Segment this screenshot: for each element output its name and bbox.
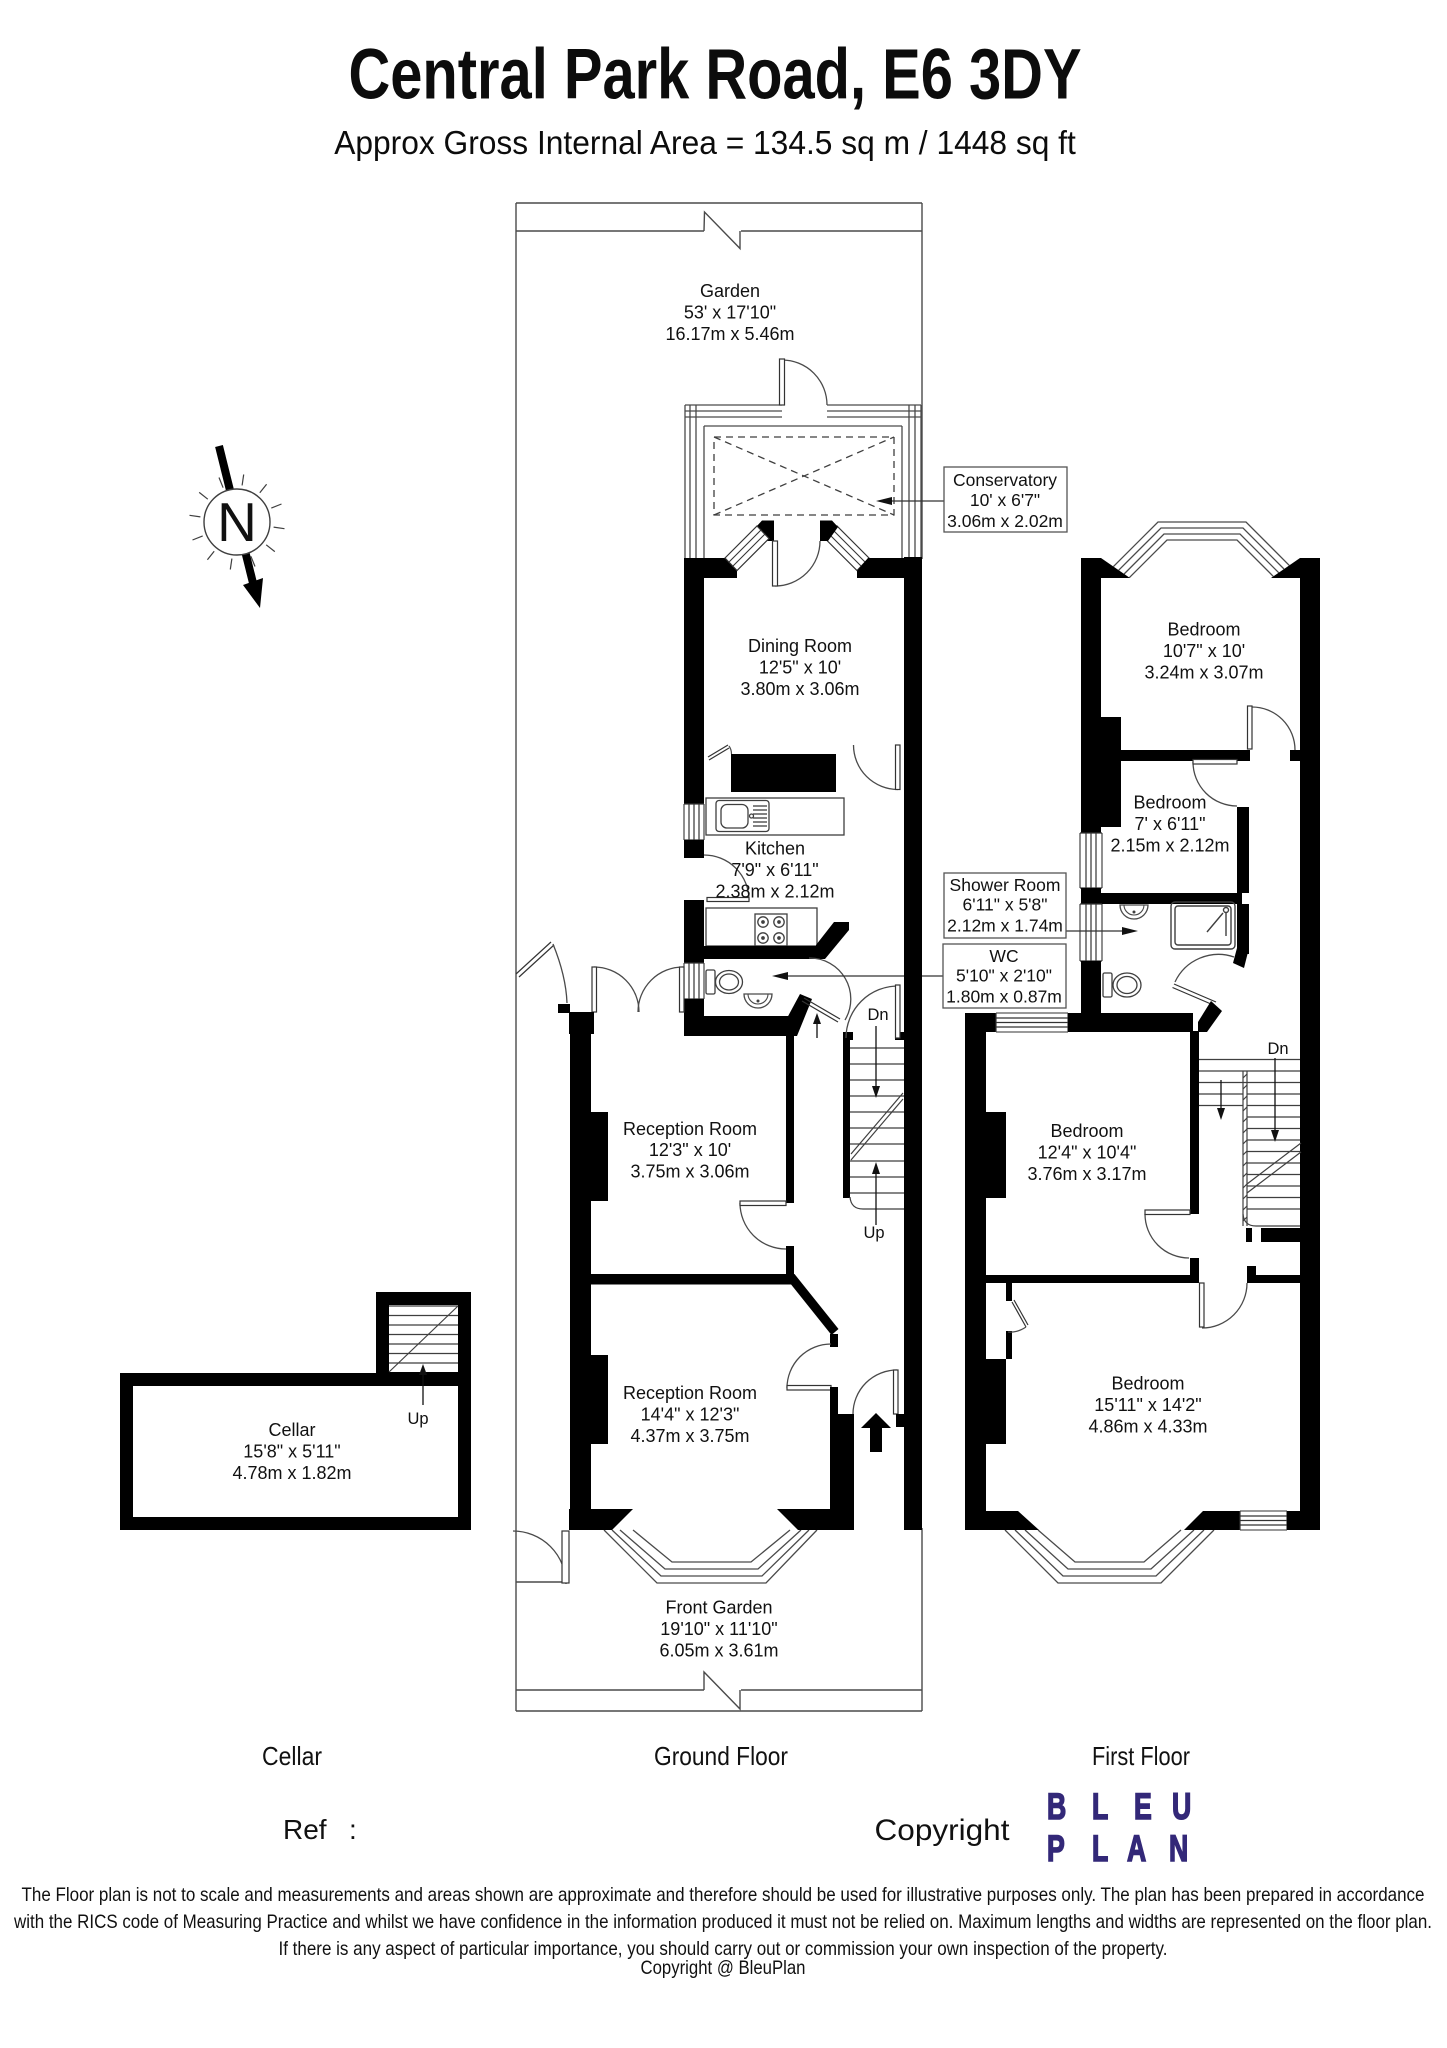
svg-text:The Floor plan is not to scale: The Floor plan is not to scale and measu… — [22, 1884, 1425, 1906]
svg-text:53' x 17'10": 53' x 17'10" — [684, 303, 776, 323]
svg-text:4.86m x 4.33m: 4.86m x 4.33m — [1088, 1417, 1207, 1437]
svg-text:19'10" x 11'10": 19'10" x 11'10" — [660, 1619, 777, 1639]
svg-text:15'8" x 5'11": 15'8" x 5'11" — [243, 1442, 340, 1462]
svg-text:10'7" x 10': 10'7" x 10' — [1163, 641, 1245, 661]
svg-text:3.76m x 3.17m: 3.76m x 3.17m — [1027, 1164, 1146, 1184]
svg-text:U: U — [1172, 1786, 1191, 1827]
svg-text:6'11" x 5'8": 6'11" x 5'8" — [963, 895, 1048, 915]
svg-text:Up: Up — [407, 1410, 428, 1428]
svg-text:WC: WC — [989, 946, 1018, 966]
svg-text:N: N — [1169, 1828, 1188, 1869]
svg-text:5'10" x 2'10": 5'10" x 2'10" — [956, 966, 1052, 986]
svg-text:Bedroom: Bedroom — [1133, 793, 1206, 813]
svg-text:3.24m x 3.07m: 3.24m x 3.07m — [1144, 663, 1263, 683]
svg-text:12'3" x 10': 12'3" x 10' — [649, 1140, 731, 1160]
svg-text:7'9" x 6'11": 7'9" x 6'11" — [731, 860, 818, 880]
svg-text:Up: Up — [863, 1224, 884, 1242]
svg-text:Dn: Dn — [867, 1006, 888, 1024]
svg-text::: : — [349, 1814, 357, 1845]
svg-text:Conservatory: Conservatory — [953, 470, 1057, 490]
svg-text:Bedroom: Bedroom — [1167, 620, 1240, 640]
svg-text:Reception Room: Reception Room — [623, 1119, 757, 1139]
svg-text:Kitchen: Kitchen — [745, 839, 805, 859]
svg-text:2.38m x 2.12m: 2.38m x 2.12m — [715, 882, 834, 902]
svg-text:7' x 6'11": 7' x 6'11" — [1135, 814, 1206, 834]
svg-text:First Floor: First Floor — [1092, 1741, 1190, 1771]
svg-text:3.06m x 2.02m: 3.06m x 2.02m — [947, 511, 1063, 531]
svg-text:Copyright @ BleuPlan: Copyright @ BleuPlan — [641, 1957, 806, 1979]
svg-text:B: B — [1047, 1786, 1066, 1827]
svg-text:6.05m x 3.61m: 6.05m x 3.61m — [659, 1641, 778, 1661]
svg-text:L: L — [1092, 1786, 1108, 1827]
svg-text:Reception Room: Reception Room — [623, 1383, 757, 1403]
svg-text:Cellar: Cellar — [262, 1741, 322, 1771]
svg-text:3.80m x 3.06m: 3.80m x 3.06m — [740, 679, 859, 699]
svg-text:Cellar: Cellar — [268, 1420, 315, 1440]
svg-text:Shower Room: Shower Room — [950, 875, 1061, 895]
svg-text:14'4" x 12'3": 14'4" x 12'3" — [641, 1405, 740, 1425]
svg-text:Bedroom: Bedroom — [1050, 1121, 1123, 1141]
svg-text:16.17m x 5.46m: 16.17m x 5.46m — [665, 324, 794, 344]
svg-text:Approx Gross Internal Area = 1: Approx Gross Internal Area = 134.5 sq m … — [334, 124, 1076, 161]
svg-text:N: N — [217, 491, 257, 553]
svg-text:Dn: Dn — [1267, 1040, 1288, 1058]
svg-text:Central Park Road, E6 3DY: Central Park Road, E6 3DY — [348, 34, 1081, 114]
svg-text:with the RICS code of Measurin: with the RICS code of Measuring Practice… — [13, 1911, 1432, 1933]
svg-text:Ground Floor: Ground Floor — [654, 1741, 788, 1771]
svg-text:A: A — [1127, 1828, 1146, 1869]
svg-text:Garden: Garden — [700, 281, 760, 301]
svg-text:12'5" x 10': 12'5" x 10' — [759, 658, 841, 678]
svg-text:Front Garden: Front Garden — [665, 1598, 772, 1618]
svg-text:2.15m x 2.12m: 2.15m x 2.12m — [1110, 836, 1229, 856]
svg-text:Dining Room: Dining Room — [748, 636, 852, 656]
svg-text:4.78m x 1.82m: 4.78m x 1.82m — [232, 1463, 351, 1483]
svg-text:Copyright: Copyright — [875, 1814, 1011, 1847]
svg-text:2.12m x 1.74m: 2.12m x 1.74m — [947, 916, 1063, 936]
svg-text:4.37m x 3.75m: 4.37m x 3.75m — [630, 1426, 749, 1446]
svg-text:10' x 6'7": 10' x 6'7" — [970, 490, 1040, 510]
svg-text:P: P — [1047, 1828, 1065, 1869]
svg-text:12'4" x 10'4": 12'4" x 10'4" — [1038, 1143, 1137, 1163]
svg-text:15'11" x 14'2": 15'11" x 14'2" — [1094, 1395, 1201, 1415]
svg-text:3.75m x 3.06m: 3.75m x 3.06m — [630, 1162, 749, 1182]
svg-text:E: E — [1134, 1786, 1152, 1827]
svg-text:L: L — [1092, 1828, 1108, 1869]
svg-text:Bedroom: Bedroom — [1111, 1374, 1184, 1394]
svg-text:Ref: Ref — [283, 1814, 327, 1845]
svg-text:1.80m x 0.87m: 1.80m x 0.87m — [946, 987, 1062, 1007]
